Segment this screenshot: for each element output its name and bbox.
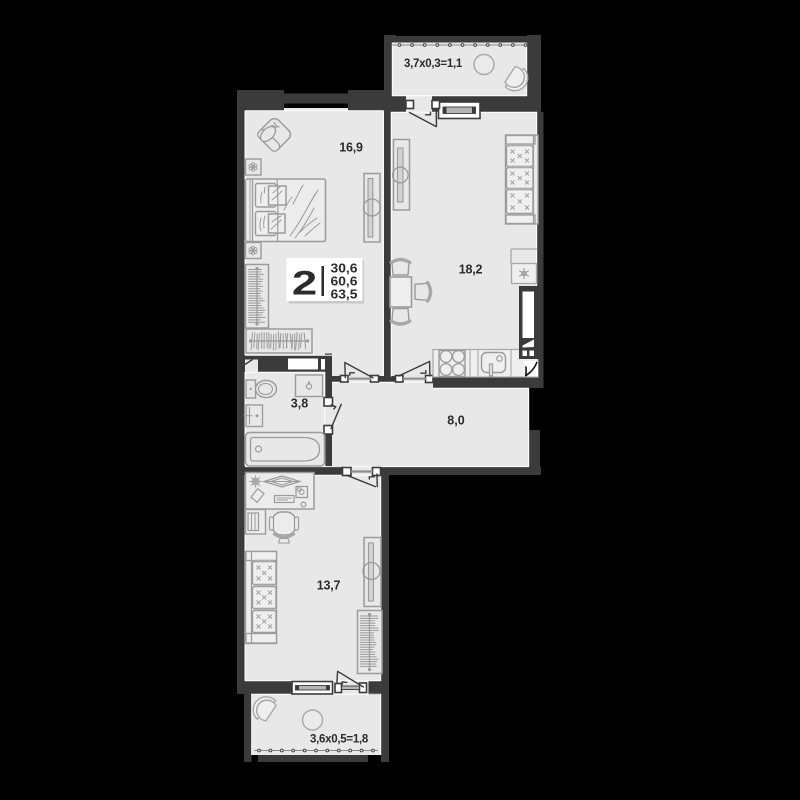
svg-text:8,0: 8,0 [447,414,464,428]
svg-text:2: 2 [292,263,317,302]
svg-text:63,5: 63,5 [331,287,358,302]
svg-text:13,7: 13,7 [317,579,341,593]
svg-text:18,2: 18,2 [459,263,483,277]
svg-text:3,8: 3,8 [291,397,308,411]
svg-text:16,9: 16,9 [339,141,363,155]
svg-text:3,6х0,5=1,8: 3,6х0,5=1,8 [310,734,369,746]
svg-text:3,7х0,3=1,1: 3,7х0,3=1,1 [404,58,463,70]
